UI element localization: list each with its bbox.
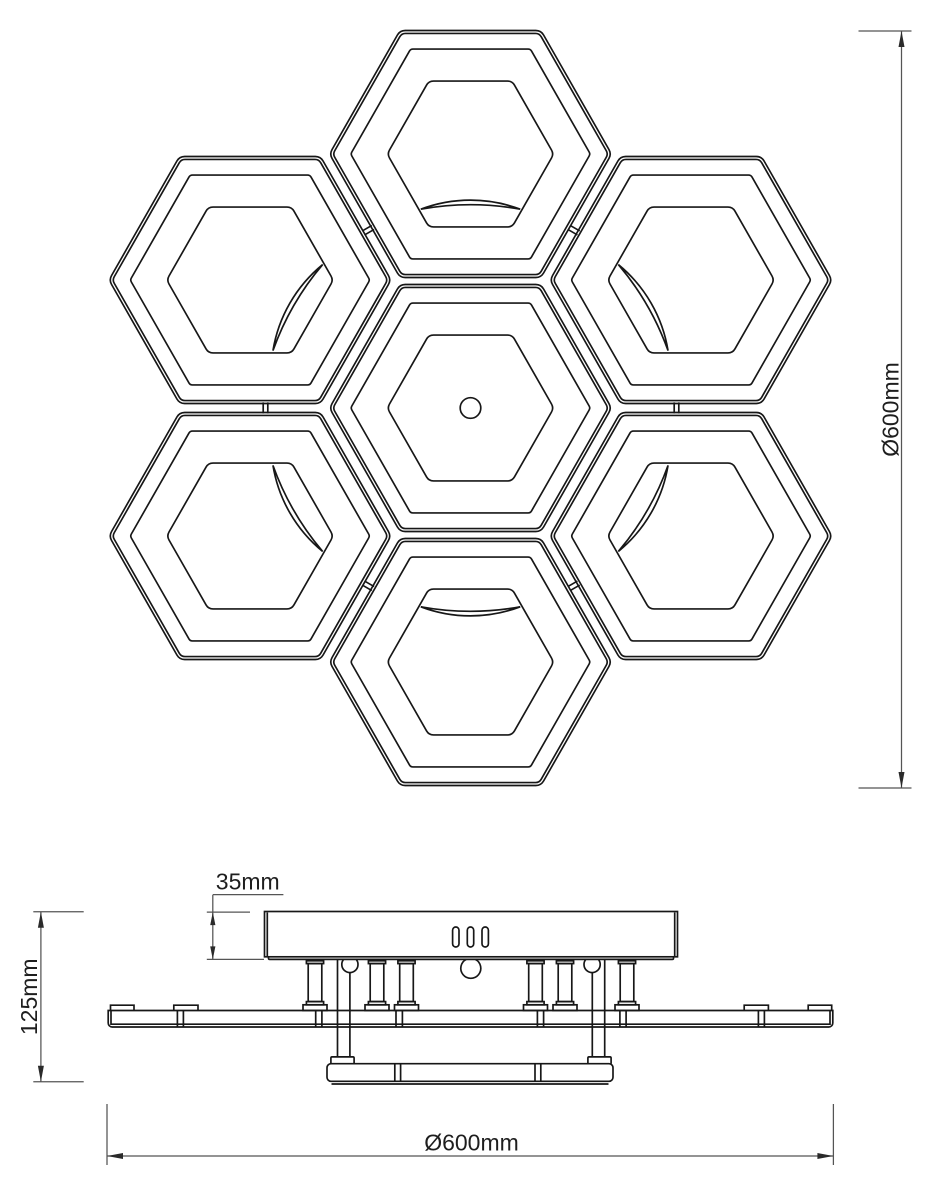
svg-text:Ø600mm: Ø600mm xyxy=(424,1130,519,1156)
svg-text:125mm: 125mm xyxy=(16,958,42,1035)
svg-text:35mm: 35mm xyxy=(216,869,280,895)
svg-text:Ø600mm: Ø600mm xyxy=(877,362,903,457)
